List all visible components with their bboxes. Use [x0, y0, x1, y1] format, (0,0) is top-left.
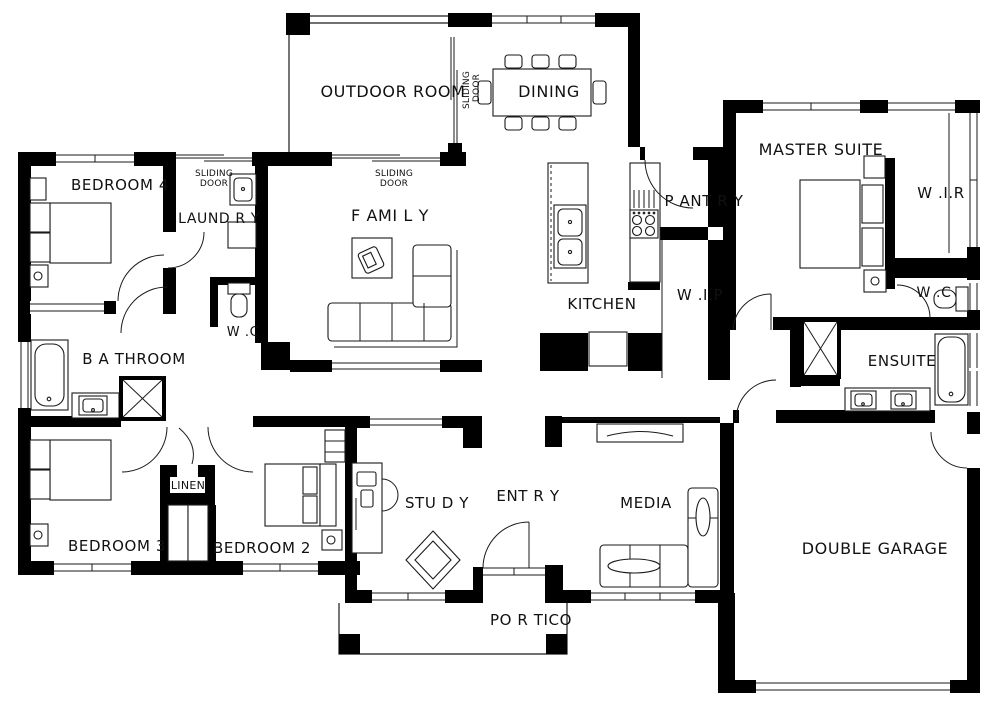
wardrobe-icon-bedroom2 — [325, 430, 345, 462]
label-sliding-laundry-1: SLIDING — [195, 169, 233, 179]
shower-icon-bathroom — [121, 378, 164, 419]
shower-icon-ensuite — [802, 320, 839, 377]
kitchen-island-icon — [548, 163, 588, 283]
label-master-suite: MASTER SUITE — [759, 140, 884, 159]
desk-icon-study — [352, 463, 398, 553]
label-bedroom2: BEDROOM 2 — [213, 539, 311, 557]
window-master-1 — [763, 100, 860, 113]
laundry-sink-icon — [230, 174, 256, 205]
tv-console-icon-media — [597, 424, 683, 442]
label-kitchen: KITCHEN — [567, 295, 636, 313]
door-linen — [179, 428, 193, 464]
window-study — [372, 590, 445, 603]
label-wc-left: W .C — [227, 325, 260, 340]
door-laundry — [168, 232, 204, 268]
window-ensuite-2 — [967, 371, 980, 406]
fridge-icon — [589, 332, 627, 366]
label-bedroom4: BEDROOM 4 — [71, 176, 169, 194]
robe-bedroom4-front — [30, 301, 104, 314]
rug-icon-study — [406, 531, 460, 589]
label-linen: LINEN — [171, 479, 205, 492]
furniture — [30, 55, 968, 589]
door-bathroom — [121, 287, 167, 333]
label-sliding-dining-1: SLIDING — [462, 71, 472, 109]
label-study: STU D Y — [405, 494, 469, 512]
window-media — [591, 590, 695, 603]
vanity-icon-ensuite — [845, 388, 930, 411]
door-entry — [483, 522, 529, 568]
label-bedroom3: BEDROOM 3 — [68, 537, 166, 555]
cooktop-icon — [630, 190, 658, 238]
label-entry: ENT R Y — [496, 487, 559, 505]
label-portico: PO R TICO — [490, 611, 572, 629]
vanity-icon-bathroom — [72, 393, 119, 418]
window-bedroom4 — [56, 152, 134, 166]
bed-icon-bedroom3 — [30, 440, 111, 546]
label-media: MEDIA — [620, 494, 672, 512]
window-bedroom2 — [243, 561, 318, 575]
label-bathroom: B A THROOM — [82, 350, 186, 368]
opening-study-top — [370, 416, 442, 428]
label-double-garage: DOUBLE GARAGE — [802, 539, 949, 558]
label-sliding-laundry-2: DOOR — [200, 179, 228, 189]
label-ensuite: ENSUITE — [868, 352, 936, 370]
window-master-2 — [888, 100, 955, 113]
label-family: F AMI L Y — [351, 206, 429, 225]
floor-plan: OUTDOOR ROOM DINING MASTER SUITE W .I.R … — [0, 0, 1000, 705]
label-pantry: P ANT R Y — [665, 192, 744, 210]
rug-icon-family — [352, 238, 392, 278]
label-dining: DINING — [518, 82, 580, 101]
label-laundry: LAUND R Y — [178, 211, 260, 227]
window-dining — [492, 13, 595, 27]
label-sliding-dining-2: DOOR — [472, 74, 482, 102]
label-outdoor-room: OUTDOOR ROOM — [320, 82, 465, 101]
opening-family-south — [332, 360, 440, 372]
door-garage-hall — [736, 380, 776, 420]
window-wc-master — [967, 283, 980, 310]
bathtub-icon-bathroom — [31, 340, 68, 410]
entry-door-sill — [483, 565, 545, 578]
sliding-door-family-sill — [332, 152, 440, 166]
bathtub-icon-ensuite — [935, 334, 968, 405]
wardrobe-icon-shared — [168, 505, 208, 561]
label-sliding-family-1: SLIDING — [375, 169, 413, 179]
chair-icon-study — [382, 479, 398, 511]
garage-door-sill — [756, 680, 950, 693]
door-bedroom4 — [118, 255, 164, 301]
window-wir — [967, 113, 980, 247]
door-master — [733, 294, 771, 330]
toilet-icon-wc-left — [228, 283, 250, 317]
bed-icon-bedroom2 — [265, 464, 342, 550]
bed-icon-master — [800, 156, 886, 292]
window-ensuite-1 — [967, 333, 980, 368]
label-wip: W .I.P — [677, 286, 723, 304]
sliding-door-laundry-sill — [176, 152, 252, 166]
label-wir: W .I.R — [917, 184, 965, 202]
label-wc-master: W .C — [917, 285, 952, 301]
bed-icon-bedroom4 — [30, 178, 111, 287]
window-bedroom3 — [54, 561, 131, 575]
window-bathroom — [18, 342, 31, 408]
label-sliding-family-2: DOOR — [380, 179, 408, 189]
door-garage-side — [931, 432, 967, 468]
